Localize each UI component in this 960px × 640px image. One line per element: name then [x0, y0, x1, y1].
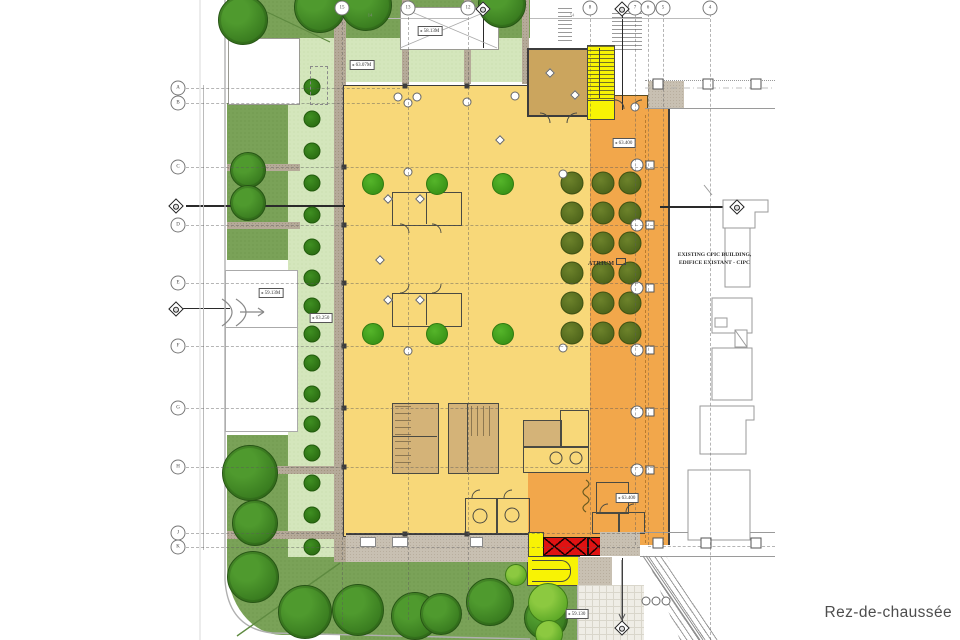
grid-bubble-left: E	[171, 276, 186, 291]
strip-tree-icon	[304, 416, 321, 433]
walkway-south-column	[751, 538, 762, 549]
gridline-horizontal	[186, 533, 640, 534]
dimension-label: 14	[368, 13, 373, 18]
section-marker-icon	[614, 620, 630, 636]
atrium-tag-box	[616, 258, 626, 265]
grid-bubble-top: 5	[656, 1, 671, 16]
section-marker-icon	[168, 301, 184, 317]
bright-tree-icon	[505, 564, 527, 586]
existing-building-label: EXISTING CPIC BUILDING, EDIFICE EXISTANT…	[662, 252, 767, 267]
gridline-vertical	[590, 14, 591, 540]
level-tag: 63.400	[613, 138, 636, 148]
tree-icon	[230, 152, 266, 188]
gridline-horizontal	[186, 88, 400, 89]
column-square	[646, 161, 655, 170]
grid-bubble-top: 15	[335, 1, 350, 16]
section-marker-icon	[729, 199, 745, 215]
grid-bubble-left: J	[171, 526, 186, 541]
grid-bubble-left: F	[171, 339, 186, 354]
tree-icon	[218, 0, 268, 45]
level-tag: 63.07M	[350, 60, 375, 70]
atrium-tree-icon	[561, 262, 584, 285]
tree-icon	[278, 585, 332, 639]
gridline-vertical	[635, 14, 636, 545]
fixture-circle	[413, 93, 422, 102]
gridline-vertical	[663, 14, 664, 545]
bollard-circle	[662, 597, 671, 606]
gridline-horizontal	[186, 167, 668, 168]
grid-bubble-left: G	[171, 401, 186, 416]
level-tag: 63.400	[616, 493, 639, 503]
gridline-horizontal	[186, 346, 668, 347]
column-circle	[631, 464, 644, 477]
atrium-tree-icon	[592, 292, 615, 315]
tree-icon	[466, 578, 514, 626]
grid-bubble-left: A	[171, 81, 186, 96]
gridline-horizontal	[186, 467, 668, 468]
strip-tree-icon	[304, 175, 321, 192]
floor-tree-icon	[492, 173, 514, 195]
marker-diamond-icon	[375, 255, 385, 265]
existing-building-line2: EDIFICE EXISTANT - CIPC	[662, 260, 767, 268]
grid-bubble-left: H	[171, 460, 186, 475]
walkway-north-column	[703, 79, 714, 90]
atrium-label: ATRIUM	[588, 258, 626, 267]
strip-tree-icon	[304, 386, 321, 403]
level-tag: 59.130	[566, 609, 589, 619]
existing-building-line1: EXISTING CPIC BUILDING,	[662, 252, 767, 260]
strip-tree-icon	[304, 143, 321, 160]
strip-tree-icon	[304, 475, 321, 492]
atrium-tree-icon	[561, 322, 584, 345]
floor-tree-icon	[362, 173, 384, 195]
strip-tree-icon	[304, 507, 321, 524]
column-circle	[631, 159, 644, 172]
atrium-label-text: ATRIUM	[588, 261, 614, 267]
fixture-circle	[463, 98, 472, 107]
section-marker-icon	[168, 198, 184, 214]
walkway-south-column	[653, 538, 664, 549]
fixture-circle	[559, 170, 568, 179]
fixture-circle	[559, 344, 568, 353]
grid-bubble-left: D	[171, 218, 186, 233]
gridline-vertical	[648, 14, 649, 545]
atrium-tree-icon	[592, 172, 615, 195]
column-square	[646, 284, 655, 293]
floor-tree-icon	[426, 173, 448, 195]
floor-tree-icon	[426, 323, 448, 345]
floor-tree-icon	[492, 323, 514, 345]
grid-bubble-top: 8	[583, 1, 598, 16]
tree-icon	[420, 593, 462, 635]
tree-icon	[227, 551, 279, 603]
marker-diamond-icon	[383, 295, 393, 305]
atrium-tree-icon	[592, 322, 615, 345]
gridline-horizontal	[186, 225, 668, 226]
strip-tree-icon	[304, 239, 321, 256]
atrium-tree-icon	[592, 232, 615, 255]
gridline-horizontal	[186, 408, 668, 409]
grid-bubble-left: B	[171, 96, 186, 111]
tree-icon	[232, 500, 278, 546]
atrium-tree-icon	[561, 232, 584, 255]
tree-icon	[332, 584, 384, 636]
walkway-north-column	[751, 79, 762, 90]
bright-tree-icon	[535, 620, 563, 640]
gridline-horizontal	[186, 103, 400, 104]
walkway-north-column	[653, 79, 664, 90]
floor-plan-canvas: ABCDEFGHJK1513128765458.13M63.07M59.13M6…	[0, 0, 960, 640]
dashed-planter-outline	[310, 66, 328, 105]
marker-diamond-icon	[545, 68, 555, 78]
grid-bubble-top: 12	[461, 1, 476, 16]
tree-icon	[222, 445, 278, 501]
grid-bubble-top: 6	[641, 1, 656, 16]
drawing-caption: Rez-de-chaussée	[825, 604, 952, 622]
grid-bubble-top: 4	[703, 1, 718, 16]
atrium-tree-icon	[619, 322, 642, 345]
gridline-horizontal	[186, 547, 640, 548]
bollard-circle	[642, 597, 651, 606]
marker-diamond-icon	[383, 194, 393, 204]
gridline-vertical	[408, 12, 409, 620]
dimension-label: 54	[570, 13, 575, 18]
grid-bubble-left: K	[171, 540, 186, 555]
grid-bubble-top: 13	[401, 1, 416, 16]
strip-tree-icon	[304, 355, 321, 372]
grid-bubble-left: C	[171, 160, 186, 175]
strip-tree-icon	[304, 207, 321, 224]
marker-diamond-icon	[570, 90, 580, 100]
strip-tree-icon	[304, 111, 321, 128]
level-tag: 59.13M	[259, 288, 284, 298]
strip-tree-icon	[304, 445, 321, 462]
gridline-vertical	[468, 12, 469, 620]
bright-tree-icon	[528, 583, 568, 623]
level-tag: 58.13M	[418, 26, 443, 36]
atrium-tree-icon	[561, 292, 584, 315]
gridline-horizontal	[186, 283, 668, 284]
strip-tree-icon	[304, 326, 321, 343]
generated-layer: ABCDEFGHJK1513128765458.13M63.07M59.13M6…	[0, 0, 960, 640]
marker-diamond-icon	[415, 194, 425, 204]
marker-diamond-icon	[415, 295, 425, 305]
atrium-tree-icon	[619, 232, 642, 255]
gridline-vertical	[342, 12, 343, 625]
fixture-circle	[394, 93, 403, 102]
atrium-tree-icon	[561, 202, 584, 225]
bollard-circle	[652, 597, 661, 606]
wall-column	[403, 84, 408, 89]
atrium-tree-icon	[619, 292, 642, 315]
fixture-circle	[511, 92, 520, 101]
marker-diamond-icon	[495, 135, 505, 145]
tree-icon	[230, 185, 266, 221]
level-tag: 63.250	[310, 313, 333, 323]
strip-tree-icon	[304, 298, 321, 315]
atrium-tree-icon	[619, 172, 642, 195]
gridline-vertical	[710, 14, 711, 640]
floor-tree-icon	[362, 323, 384, 345]
atrium-tree-icon	[592, 202, 615, 225]
